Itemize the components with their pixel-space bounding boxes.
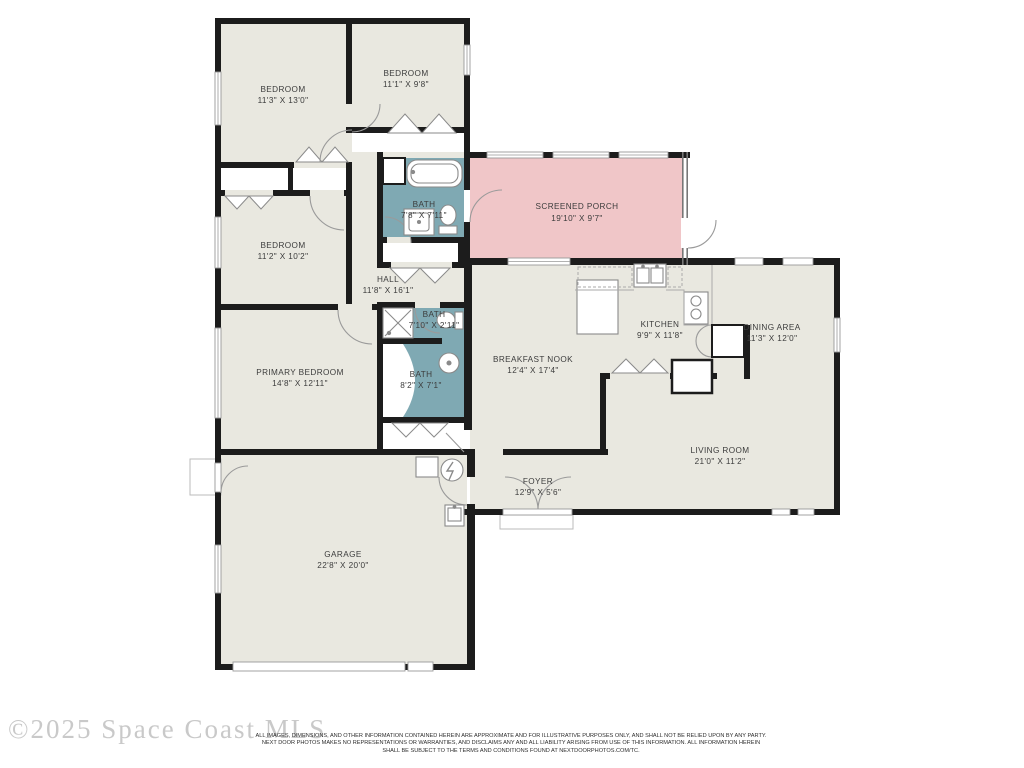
- svg-text:BEDROOM: BEDROOM: [260, 241, 305, 250]
- svg-text:12'9" X 5'6": 12'9" X 5'6": [515, 488, 562, 497]
- svg-text:DINING AREA: DINING AREA: [743, 323, 800, 332]
- screen-door: [688, 220, 716, 248]
- svg-text:8'2" X 7'1": 8'2" X 7'1": [400, 381, 442, 390]
- svg-text:7'8" X 7'11": 7'8" X 7'11": [401, 211, 447, 220]
- screen-door-gap: [681, 218, 689, 248]
- entry-door-gap: [503, 509, 572, 515]
- svg-text:21'0" X 11'2": 21'0" X 11'2": [695, 457, 746, 466]
- svg-text:11'3" X 12'0": 11'3" X 12'0": [747, 334, 798, 343]
- svg-text:BATH: BATH: [423, 310, 446, 319]
- svg-text:GARAGE: GARAGE: [324, 550, 362, 559]
- svg-text:HALL: HALL: [377, 275, 399, 284]
- svg-text:BEDROOM: BEDROOM: [383, 69, 428, 78]
- front-entry-stoop: [500, 515, 573, 529]
- svg-text:11'2" X 10'2": 11'2" X 10'2": [258, 252, 309, 261]
- svg-text:PRIMARY BEDROOM: PRIMARY BEDROOM: [256, 368, 344, 377]
- disclaimer-line-3: SHALL BE SUBJECT TO THE TERMS AND CONDIT…: [253, 748, 769, 755]
- svg-text:11'8" X 16'1": 11'8" X 16'1": [363, 286, 414, 295]
- garage-door: [233, 662, 405, 671]
- svg-text:7'10" X 2'11": 7'10" X 2'11": [409, 321, 460, 330]
- svg-text:12'4" X 17'4": 12'4" X 17'4": [507, 366, 558, 375]
- disclaimer-text: ALL IMAGES, DIMENSIONS, AND OTHER INFORM…: [253, 733, 769, 755]
- utility-box: [416, 457, 438, 477]
- svg-text:9'9" X 11'8": 9'9" X 11'8": [637, 331, 683, 340]
- svg-text:11'1" X 9'8": 11'1" X 9'8": [383, 80, 429, 89]
- floor-plan: BEDROOM 11'3" X 13'0" BEDROOM 11'1" X 9'…: [0, 0, 1024, 768]
- dining-closet: [712, 325, 744, 357]
- svg-text:BREAKFAST NOOK: BREAKFAST NOOK: [493, 355, 573, 364]
- svg-text:BATH: BATH: [413, 200, 436, 209]
- refrigerator: [577, 280, 618, 334]
- floorplan-image: BEDROOM 11'3" X 13'0" BEDROOM 11'1" X 9'…: [0, 0, 1024, 768]
- svg-text:14'8" X 12'11": 14'8" X 12'11": [272, 379, 328, 388]
- svg-text:FOYER: FOYER: [523, 477, 553, 486]
- svg-text:SCREENED PORCH: SCREENED PORCH: [536, 202, 619, 211]
- garage-door-2: [408, 662, 433, 671]
- svg-text:BATH: BATH: [410, 370, 433, 379]
- pantry-closet: [672, 360, 712, 393]
- svg-text:11'3" X 13'0": 11'3" X 13'0": [258, 96, 309, 105]
- svg-text:LIVING ROOM: LIVING ROOM: [691, 446, 750, 455]
- disclaimer-line-1: ALL IMAGES, DIMENSIONS, AND OTHER INFORM…: [253, 733, 769, 740]
- svg-text:BEDROOM: BEDROOM: [260, 85, 305, 94]
- svg-text:KITCHEN: KITCHEN: [641, 320, 680, 329]
- porch-screen-wall: [682, 152, 688, 265]
- svg-text:19'10" X 9'7": 19'10" X 9'7": [551, 214, 602, 223]
- svg-text:22'8" X 20'0": 22'8" X 20'0": [317, 561, 368, 570]
- disclaimer-line-2: NEXT DOOR PHOTOS MAKES NO REPRESENTATION…: [253, 740, 769, 747]
